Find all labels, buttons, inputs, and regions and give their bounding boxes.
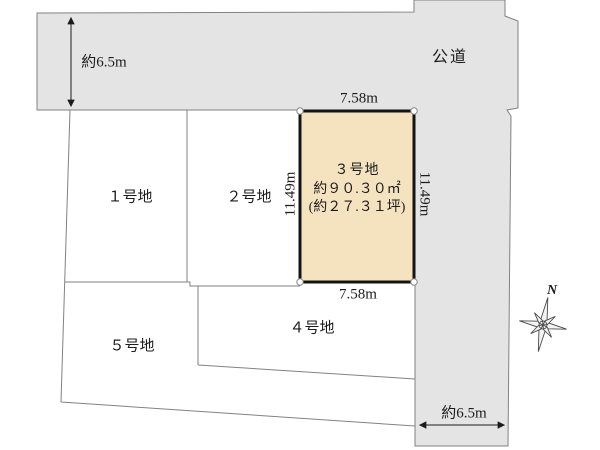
lot4-bottom-boundary [198,365,415,379]
lot3-depth-right-label: 11.49m [416,172,433,217]
lot3-depth-left-label: 11.49m [283,172,300,217]
lot3-area-m2: 約９０.３０㎡ [300,181,414,200]
road-width-top-label: 約6.5m [81,51,126,72]
corner-marker [297,108,303,114]
plot-layout-diagram: 公道 約6.5m 約6.5m 7.58m 7.58m 11.49m 11.49m… [0,0,600,450]
lot4-label: ４号地 [289,317,334,338]
lot1-label: １号地 [107,186,152,207]
lot3-width-bottom-label: 7.58m [339,287,377,304]
compass-rose-icon [515,293,572,355]
lot1-lot2-bottom-boundary [65,282,300,286]
site-boundary-left [61,110,70,402]
lot3-area-tsubo: (約２７.３１坪) [300,199,414,218]
corner-marker [297,279,303,285]
lot3-info-block: ３号地 約９０.３０㎡ (約２７.３１坪) [300,162,414,218]
lot3-name: ３号地 [300,162,414,181]
lot5-label: ５号地 [109,335,154,356]
lot2-label: ２号地 [226,186,271,207]
road-label: 公道 [432,43,468,67]
compass-north-label: N [547,283,557,299]
road-width-right-label: 約6.5m [441,402,486,423]
lot3-width-top-label: 7.58m [340,91,378,108]
corner-marker [411,108,417,114]
site-boundary-bottom [61,402,415,426]
corner-marker [411,279,417,285]
